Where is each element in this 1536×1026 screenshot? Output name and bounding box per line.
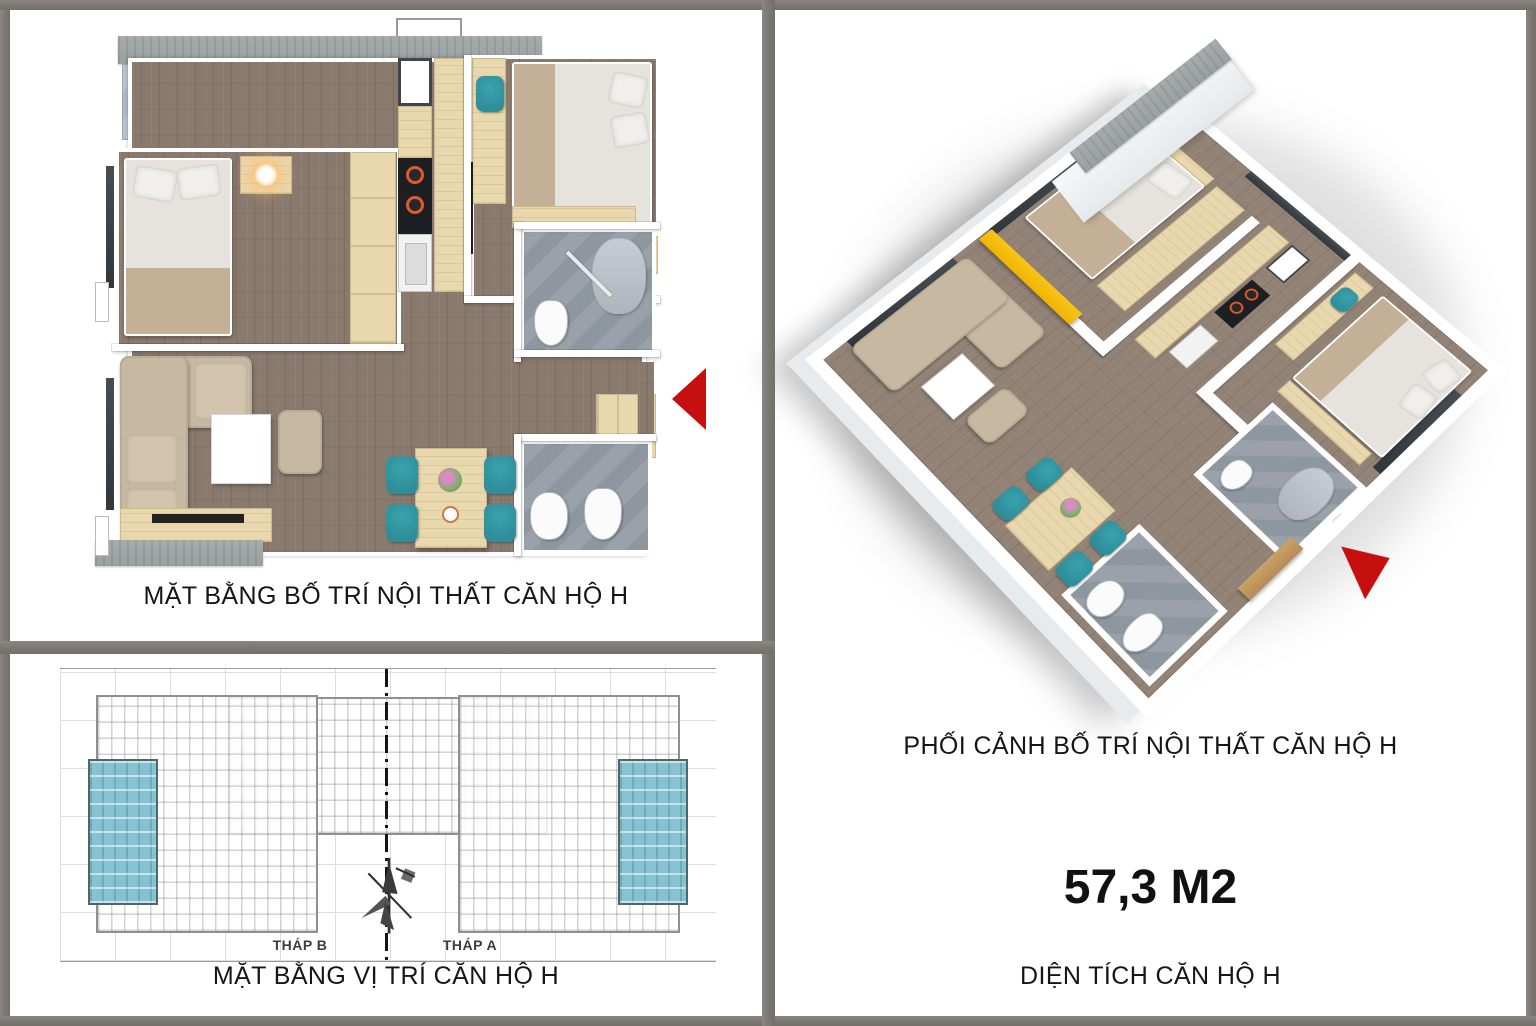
floorplan-panel: MẶT BẰNG BỐ TRÍ NỘI THẤT CĂN HỘ H xyxy=(10,10,762,641)
apartment-3d-floor xyxy=(805,81,1506,719)
bedroom1-bed xyxy=(124,158,232,336)
stove-burner xyxy=(406,196,424,214)
frame-right xyxy=(1526,0,1536,1026)
tower-a-label: THÁP A xyxy=(400,937,540,953)
pillow xyxy=(609,111,650,149)
toilet xyxy=(534,300,568,346)
divider-horizontal-left xyxy=(0,641,775,654)
bedroom2-chair xyxy=(476,76,504,112)
divider-vertical xyxy=(762,0,775,1026)
plate xyxy=(442,506,459,523)
wall xyxy=(514,434,656,441)
bedroom2-bed xyxy=(512,62,652,226)
bedroom1-lamp xyxy=(255,164,277,186)
fridge xyxy=(398,58,432,106)
floorplan-caption: MẶT BẰNG BỐ TRÍ NỘI THẤT CĂN HỘ H xyxy=(10,582,762,611)
area-value: 57,3 M2 xyxy=(775,860,1526,915)
tower-b-label: THÁP B xyxy=(230,937,370,953)
unit-h-highlight-right xyxy=(618,759,688,905)
dining-chair xyxy=(484,456,516,494)
entry-arrow-icon xyxy=(672,368,706,430)
dining-table xyxy=(415,448,487,548)
ottoman xyxy=(278,410,322,474)
siteplan-panel: THÁP B THÁP A MẶT BẰNG VỊ TRÍ CĂN HỘ H xyxy=(10,654,762,1016)
tv xyxy=(152,514,244,523)
window xyxy=(106,166,114,288)
siteplan-caption: MẶT BẰNG VỊ TRÍ CĂN HỘ H xyxy=(10,962,762,991)
perspective-panel: PHỐI CẢNH BỐ TRÍ NỘI THẤT CĂN HỘ H 57,3 … xyxy=(775,10,1526,1016)
perspective-caption: PHỐI CẢNH BỐ TRÍ NỘI THẤT CĂN HỘ H xyxy=(775,732,1526,761)
pillow xyxy=(607,71,649,110)
wall xyxy=(514,222,521,362)
stove-burner xyxy=(406,166,424,184)
kitchen-sink xyxy=(398,234,432,292)
bathtub xyxy=(1269,459,1344,530)
wall xyxy=(112,344,404,351)
window-jamb xyxy=(95,516,109,556)
dining-chair xyxy=(386,504,418,542)
window xyxy=(106,378,114,510)
pillow xyxy=(132,165,179,204)
unit-h-highlight-left xyxy=(88,759,158,905)
sink xyxy=(1079,574,1131,624)
wall xyxy=(1068,316,1112,356)
dining-chair xyxy=(484,504,516,542)
pillow xyxy=(176,163,222,201)
bathroom2 xyxy=(1061,524,1228,687)
toilet xyxy=(1214,455,1258,496)
sofa-cushion xyxy=(126,434,178,484)
toilet xyxy=(1115,607,1169,660)
siteplan-sheet: THÁP B THÁP A xyxy=(60,668,716,962)
wall xyxy=(514,222,660,229)
north-compass-icon xyxy=(346,851,432,937)
sink-basin xyxy=(405,243,427,285)
area-label: DIỆN TÍCH CĂN HỘ H xyxy=(775,962,1526,991)
wall xyxy=(464,55,471,301)
bathtub xyxy=(592,238,646,314)
stove-burner xyxy=(1227,299,1246,316)
dining-table xyxy=(1005,467,1116,571)
brochure-canvas: MẶT BẰNG BỐ TRÍ NỘI THẤT CĂN HỘ H THÁP B… xyxy=(0,0,1536,1026)
perspective-3d-view xyxy=(790,15,1520,715)
bedroom1-wardrobe xyxy=(350,152,396,344)
window-jamb xyxy=(95,282,109,322)
kitchen-counter xyxy=(434,58,464,292)
sofa-cushion xyxy=(194,362,248,420)
entry-door-opening xyxy=(638,362,654,436)
flower-vase xyxy=(438,468,462,492)
toilet xyxy=(584,488,622,540)
bidet xyxy=(530,492,568,540)
dining-chair xyxy=(386,456,418,494)
wall xyxy=(514,350,660,357)
frame-left xyxy=(0,0,10,1026)
coffee-table xyxy=(212,415,270,483)
kitchen-counter-2 xyxy=(398,106,432,158)
living-balcony-slab xyxy=(95,540,263,566)
stove-burner xyxy=(1242,286,1261,303)
